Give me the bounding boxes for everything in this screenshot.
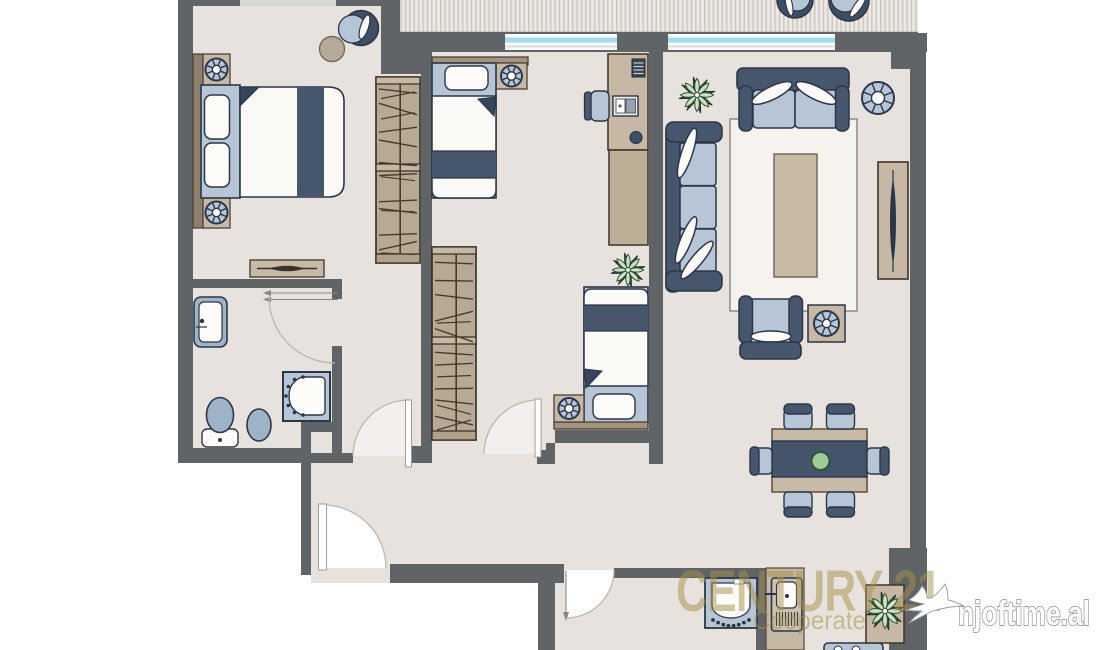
svg-text:njoftime.al: njoftime.al: [958, 595, 1090, 633]
svg-text:Cooperate: Cooperate: [753, 605, 866, 635]
